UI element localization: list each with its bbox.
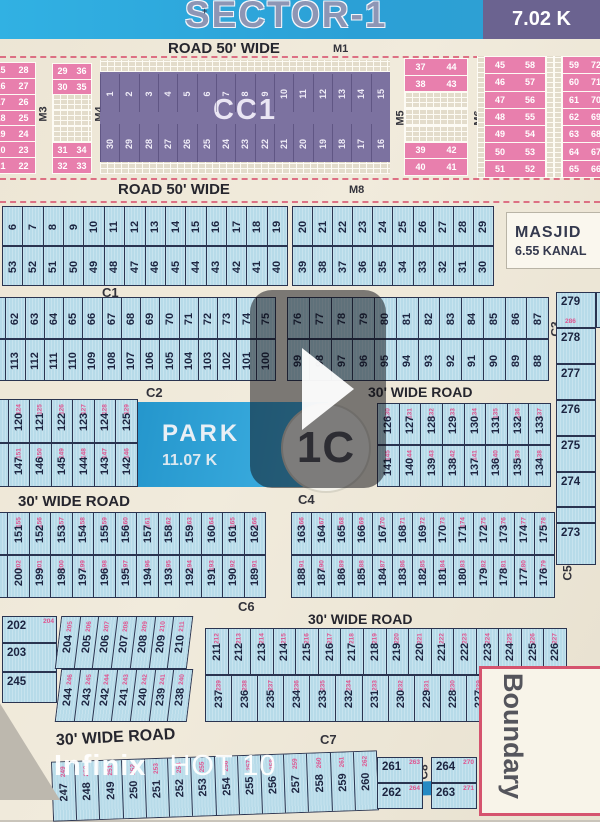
plot-cell: 21 [274, 124, 293, 162]
marker-c7: C7 [320, 732, 337, 747]
plot-cell: 18 [246, 207, 266, 245]
plot-cell: 152148 [0, 444, 8, 486]
plot-cell: 84 [461, 298, 483, 338]
plot-cell: 83 [439, 298, 461, 338]
plot-cell: 21 [312, 207, 332, 245]
plot-cell: 278 [556, 328, 596, 364]
plot-cell: 93 [418, 340, 440, 380]
plot-cell: 160156 [115, 513, 136, 554]
plot-cell: 22 [332, 207, 352, 245]
plot-cell: 133129 [442, 404, 464, 444]
plot-cell: 86 [505, 298, 527, 338]
boundary-label: Boundary [497, 673, 528, 799]
plot-cell: 19 [267, 207, 287, 245]
plot-column: 5972607161706269636864676566 [562, 56, 600, 178]
plot-cell: 11 [293, 74, 312, 112]
plot-cell: 7 [22, 207, 42, 245]
park-title: PARK [162, 420, 240, 448]
plot-cell: 24 [216, 124, 235, 162]
plot-row: 39383736353433323130 [292, 246, 494, 286]
plot-row: 1301261311271321281331291341301351311361… [377, 403, 551, 445]
boundary-box: Boundary [479, 666, 600, 816]
plot-cell: 3134 [53, 143, 91, 159]
plot-cell: 1924 [0, 126, 35, 142]
marker-m3: M3 [38, 106, 50, 121]
plot-cell: 20 [293, 207, 312, 245]
plot-cell: 259257 [283, 754, 308, 813]
plot-cell: 219218 [363, 629, 386, 674]
plot-cell: 4041 [405, 159, 467, 175]
plot-cell: 147143 [94, 444, 116, 486]
brick-cell [405, 92, 467, 109]
plot-cell: 235233 [309, 676, 335, 721]
plot-cell: 28 [453, 207, 473, 245]
plot-cell: 132128 [420, 404, 442, 444]
plot-cell: 171168 [392, 513, 412, 554]
plot-cell: 151147 [8, 444, 30, 486]
plot-cell: 111 [44, 340, 63, 380]
camera-watermark-brand: Infinix [54, 750, 146, 782]
plot-cell: 222221 [431, 629, 454, 674]
marker-c4: C4 [298, 492, 315, 507]
plot-cell: 137133 [528, 404, 550, 444]
plot-cell: 131127 [399, 404, 421, 444]
plot-row: 2052042062052072062082072092082102092112… [55, 616, 194, 669]
plot-cell: 25 [197, 124, 216, 162]
plot-cell: 6566 [563, 161, 600, 177]
plot-cell: 25 [392, 207, 412, 245]
plot-row: 1521481511471501461491451481441471431461… [0, 443, 138, 487]
plot-cell: 27 [158, 124, 177, 162]
plot-cell: 2 [119, 74, 138, 112]
plot-cell: 22 [255, 124, 274, 162]
plot-cell: 12 [124, 207, 144, 245]
plot-cell: 129125 [115, 400, 137, 442]
marker-c5: C5 [561, 565, 575, 580]
plot-cell: 175172 [473, 513, 493, 554]
plot-cell: 166162 [244, 513, 265, 554]
plot-cell: 202204 [2, 616, 57, 643]
plot-cell: 198196 [93, 556, 114, 597]
plot-cell: 33 [413, 247, 433, 285]
plot-cell: 14 [351, 74, 370, 112]
plot-cell: 155151 [7, 513, 28, 554]
plot-cell: 47 [124, 247, 144, 285]
plot-cell: 215214 [273, 629, 296, 674]
area-badge: 7.02 K [483, 0, 600, 39]
plot-cell: 5972 [563, 57, 600, 74]
plot-cell: 181178 [493, 556, 513, 597]
plot-cell: 220219 [386, 629, 409, 674]
plot-cell: 14 [165, 207, 185, 245]
plot-cell: 10 [274, 74, 293, 112]
plot-cell: 1825 [0, 111, 35, 127]
plot-cell: 27 [433, 207, 453, 245]
plot-cell: 140136 [485, 446, 507, 486]
plot-cell: 238236 [231, 676, 257, 721]
plot-cell: 15 [185, 207, 205, 245]
plot-cell: 192190 [222, 556, 243, 597]
marker-c2: C2 [146, 385, 163, 400]
brick-border [100, 162, 390, 174]
plot-cell: 196194 [136, 556, 157, 597]
plot-cell: 203201 [0, 556, 7, 597]
masjid-box: MASJID 6.55 KANAL [506, 212, 600, 269]
plot-cell: 15 [371, 74, 390, 112]
plot-cell: 6170 [563, 92, 600, 109]
plot-cell: 7 [216, 74, 235, 112]
plot-cell: 236234 [283, 676, 309, 721]
plot-cell: 6467 [563, 143, 600, 160]
plot-cell: 20 [293, 124, 312, 162]
plot-cell: 141137 [464, 446, 486, 486]
plot-cell: 187184 [372, 556, 392, 597]
plot-cell: 16 [371, 124, 390, 162]
plot-row: 302928272625242322212019181716 [100, 124, 390, 162]
plot-cell: 146142 [115, 444, 137, 486]
plot-cell: 149145 [51, 444, 73, 486]
plot-cell: 165161 [222, 513, 243, 554]
plot-cell: 12 [313, 74, 332, 112]
plot-cell: 174171 [453, 513, 473, 554]
plot-cell: 217216 [318, 629, 341, 674]
plot-cell: 142138 [442, 446, 464, 486]
plot-cell: 9 [63, 207, 83, 245]
plot-column: 3744384339424041 [404, 58, 468, 176]
plot-cell: 233231 [362, 676, 388, 721]
plot-cell: 62 [5, 298, 24, 338]
plot-cell: 28 [596, 292, 600, 328]
plot-cell: 50 [63, 247, 83, 285]
plot-row: 1541501551511561521571531581541591551601… [0, 512, 266, 555]
plot-row: 1141131121111101091081071061051041031021… [0, 339, 276, 381]
plot-cell: 186183 [392, 556, 412, 597]
plot-cell: 112 [25, 340, 44, 380]
plot-cell: 5152 [485, 161, 545, 177]
plot-cell: 190187 [311, 556, 331, 597]
plot-row: 2392372382362372352362342352332342322332… [205, 675, 493, 722]
brick-cell [53, 95, 91, 111]
plot-cell: 124120 [8, 400, 30, 442]
road-30-c: 30' WIDE ROAD [308, 611, 412, 627]
plot-cell: 6071 [563, 74, 600, 91]
plot-cell: 41 [246, 247, 266, 285]
plot-cell: 105 [159, 340, 178, 380]
plot-cell: 65 [63, 298, 82, 338]
plot-cell [556, 507, 596, 523]
plot-cell: 164160 [201, 513, 222, 554]
plot-cell: 143139 [420, 446, 442, 486]
plot-cell: 232230 [388, 676, 414, 721]
plot-cell: 169166 [352, 513, 372, 554]
plot-cell: 64 [44, 298, 63, 338]
plot-cell: 4954 [485, 126, 545, 143]
plot-cell: 1 [100, 74, 119, 112]
brick-border [554, 56, 562, 178]
plot-cell: 13 [145, 207, 165, 245]
plot-cell: 11 [104, 207, 124, 245]
plot-cell: 273 [556, 523, 596, 565]
plot-cell: 2122 [0, 158, 35, 173]
plot-cell: 201199 [29, 556, 50, 597]
plot-cell: 148144 [72, 444, 94, 486]
plot-row: 20212223242526272829 [292, 206, 494, 246]
plot-cell: 188185 [352, 556, 372, 597]
plot-cell: 43 [206, 247, 226, 285]
plot-cell: 4657 [485, 74, 545, 91]
plot-cell: 63 [25, 298, 44, 338]
plot-cell: 35 [372, 247, 392, 285]
plot-row: 123456789101112131415 [100, 74, 390, 112]
plot-cell: 49 [83, 247, 103, 285]
brick-cell [405, 109, 467, 126]
plot-cell: 113 [5, 340, 24, 380]
plot-cell: 8 [235, 74, 254, 112]
plot-cell: 16 [206, 207, 226, 245]
plot-cell: 104 [179, 340, 198, 380]
plot-cell: 3035 [53, 80, 91, 96]
plot-cell: 191188 [292, 556, 311, 597]
plot-cell: 39 [293, 247, 312, 285]
brick-border [546, 56, 554, 178]
plot-cell: 128124 [94, 400, 116, 442]
plot-row: 5352515049484746454443424140 [2, 246, 288, 286]
plot-cell: 110 [63, 340, 82, 380]
plot-cell: 212211 [206, 629, 228, 674]
plot-cell: 17 [351, 124, 370, 162]
plot-cell: 134130 [464, 404, 486, 444]
plot-cell: 38 [312, 247, 332, 285]
plot-cell: 125121 [29, 400, 51, 442]
brick-border [477, 56, 485, 178]
plot-row: 1231191241201251211261221271231281241291… [0, 399, 138, 443]
plot-cell: 52 [22, 247, 42, 285]
plot-cell: 82 [418, 298, 440, 338]
plot-cell: 216215 [295, 629, 318, 674]
plot-cell: 239237 [206, 676, 231, 721]
plot-cell: 135131 [485, 404, 507, 444]
plot-cell: 156152 [29, 513, 50, 554]
plot-cell: 245 [2, 672, 57, 703]
plot-cell: 92 [439, 340, 461, 380]
plot-cell: 32 [433, 247, 453, 285]
marker-m8: M8 [349, 184, 364, 196]
plot-cell: 5053 [485, 143, 545, 160]
plot-cell: 69 [140, 298, 159, 338]
sector-title: SECTOR-1 [185, 0, 387, 36]
plot-cell: 172169 [412, 513, 432, 554]
plot-cell: 200198 [50, 556, 71, 597]
plot-cell: 275 [556, 436, 596, 472]
brick-cell [405, 126, 467, 143]
plot-cell: 223222 [453, 629, 476, 674]
plot-cell: 4558 [485, 57, 545, 74]
plot-cell: 183180 [453, 556, 473, 597]
plot-cell: 231229 [414, 676, 440, 721]
plot-cell: 158154 [72, 513, 93, 554]
play-icon [302, 348, 354, 430]
plot-cell: 161157 [136, 513, 157, 554]
plot-cell: 1726 [0, 95, 35, 111]
plot-cell: 5 [177, 74, 196, 112]
plot-cell: 26 [177, 124, 196, 162]
plot-cell: 89 [505, 340, 527, 380]
plot-cell: 4855 [485, 109, 545, 126]
plot-cell: 3744 [405, 59, 467, 76]
masjid-area: 6.55 KANAL [515, 244, 587, 258]
plot-cell: 264270 [431, 757, 477, 783]
plot-cell: 51 [43, 247, 63, 285]
plot-cell: 170167 [372, 513, 392, 554]
plot-cell: 262260 [353, 751, 378, 810]
plot-cell: 30 [473, 247, 493, 285]
plot-cell: 18 [332, 124, 351, 162]
plot-cell: 139135 [507, 446, 529, 486]
plot-cell: 144140 [399, 446, 421, 486]
dashed-line [0, 178, 600, 180]
plot-row: 1911881901871891861881851871841861831851… [291, 555, 555, 598]
park-area: 11.07 K [162, 452, 217, 470]
dashed-line [0, 201, 600, 203]
plot-cell: 19 [313, 124, 332, 162]
plot-cell: 44 [185, 247, 205, 285]
plot-cell: 159155 [93, 513, 114, 554]
plot-row: 1661631671641681651691661701671711681721… [291, 512, 555, 555]
camera-watermark: Infinix HOT 10 [54, 750, 276, 783]
plot-cell: 203 [2, 643, 57, 672]
plot-cell: 4 [158, 74, 177, 112]
plot-cell: 178175 [534, 513, 554, 554]
plot-cell: 127123 [72, 400, 94, 442]
plot-cell: 195193 [158, 556, 179, 597]
plot-cell: 274 [556, 472, 596, 507]
plot-cell: 138134 [528, 446, 550, 486]
plot-cell: 68 [121, 298, 140, 338]
plot-cell: 199197 [72, 556, 93, 597]
plot-cell: 214213 [250, 629, 273, 674]
plot-cell: 73 [217, 298, 236, 338]
plot-cell: 106 [140, 340, 159, 380]
camera-watermark-model: HOT 10 [169, 750, 276, 782]
plot-cell: 173170 [433, 513, 453, 554]
plot-cell: 48 [104, 247, 124, 285]
brick-border [100, 60, 390, 72]
marker-m1: M1 [333, 43, 348, 55]
plot-column: 4558465747564855495450535152 [484, 56, 546, 178]
plot-cell: 34 [392, 247, 412, 285]
road-30-b: 30' WIDE ROAD [18, 493, 130, 510]
plot-cell: 150146 [29, 444, 51, 486]
plot-cell: 24 [372, 207, 392, 245]
plot-cell: 179176 [534, 556, 554, 597]
plot-cell: 103 [198, 340, 217, 380]
plot-cell: 163159 [179, 513, 200, 554]
plot-cell: 42 [226, 247, 246, 285]
plot-cell: 17 [226, 207, 246, 245]
plot-cell: 91 [461, 340, 483, 380]
plot-cell: 202200 [7, 556, 28, 597]
plot-cell: 40 [267, 247, 287, 285]
plot-cell: 1627 [0, 79, 35, 95]
plot-cell: 1528 [0, 63, 35, 79]
plot-cell: 262264 [377, 783, 423, 809]
video-watermark [250, 290, 386, 488]
plot-cell: 28 [139, 124, 158, 162]
plot-cell: 194192 [179, 556, 200, 597]
plot-row: 1451411441401431391421381411371401361391… [377, 445, 551, 487]
plot-cell: 108 [102, 340, 121, 380]
plot-cell: 185182 [412, 556, 432, 597]
plot-cell: 53 [3, 247, 22, 285]
plot-cell: 87 [526, 298, 548, 338]
plot-cell: 107 [121, 340, 140, 380]
plot-cell: 3843 [405, 76, 467, 93]
plot-cell: 3942 [405, 143, 467, 160]
plot-cell: 71 [179, 298, 198, 338]
plot-cell: 230228 [440, 676, 466, 721]
road-50-top-label: ROAD 50' WIDE [168, 40, 280, 57]
plot-cell: 261263 [377, 757, 423, 783]
plot-cell: 261259 [330, 752, 355, 811]
plot-cell: 8 [43, 207, 63, 245]
plot-cell: 237235 [257, 676, 283, 721]
plot-cell: 182179 [473, 556, 493, 597]
plot-cell: 279286 [556, 292, 596, 328]
plot-cell: 3233 [53, 158, 91, 173]
plot-cell: 277 [556, 364, 596, 400]
plot-cell: 29 [473, 207, 493, 245]
plot-cell: 81 [396, 298, 418, 338]
brick-cell [53, 111, 91, 127]
plot-cell: 23 [352, 207, 372, 245]
plot-cell: 221220 [408, 629, 431, 674]
plot-cell: 3 [139, 74, 158, 112]
plot-cell: 176173 [493, 513, 513, 554]
plot-cell: 197195 [115, 556, 136, 597]
plot-cell: 70 [159, 298, 178, 338]
plot-cell: 26 [413, 207, 433, 245]
plot-cell: 157153 [50, 513, 71, 554]
plot-cell: 4756 [485, 92, 545, 109]
plot-cell: 23 [235, 124, 254, 162]
plot-column: 2936303531343233 [52, 63, 92, 174]
plot-cell: 85 [483, 298, 505, 338]
plot-cell: 168165 [331, 513, 351, 554]
plot-cell: 191189 [244, 556, 265, 597]
plot-cell: 2936 [53, 64, 91, 80]
plot-cell: 45 [165, 247, 185, 285]
plot-cell: 154150 [0, 513, 7, 554]
plot-cell: 6 [197, 74, 216, 112]
plot-cell: 66 [82, 298, 101, 338]
plot-cell: 90 [483, 340, 505, 380]
plot-row: 678910111213141516171819 [2, 206, 288, 246]
plot-cell: 13 [332, 74, 351, 112]
plot-cell: 177174 [514, 513, 534, 554]
plot-cell: 123119 [0, 400, 8, 442]
plot-cell: 67 [102, 298, 121, 338]
plot-cell: 260258 [306, 753, 331, 812]
plot-cell: 46 [145, 247, 165, 285]
plot-cell: 189186 [331, 556, 351, 597]
plot-cell: 30 [100, 124, 119, 162]
plot-cell: 167164 [311, 513, 331, 554]
marker-c6: C6 [238, 599, 255, 614]
plot-row: 2462442452432442422432412422402412392402… [55, 669, 194, 722]
plot-row: 2032012022002011992001981991971981961971… [0, 555, 266, 598]
road-50-second-label: ROAD 50' WIDE [118, 181, 230, 198]
plot-cell: 9 [255, 74, 274, 112]
